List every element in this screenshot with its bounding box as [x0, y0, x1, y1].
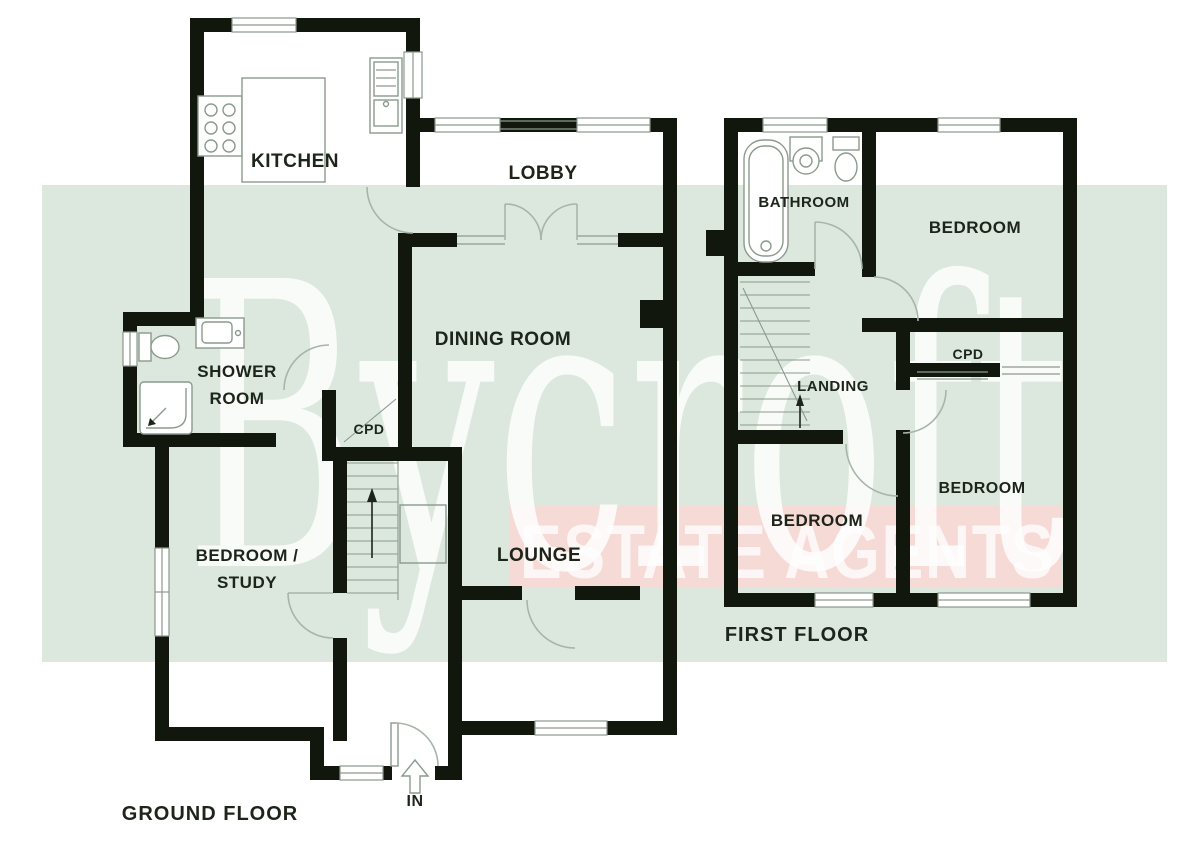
- landing-label: LANDING: [797, 378, 869, 395]
- toilet-fixture: [139, 333, 179, 361]
- window-porch: [340, 766, 383, 780]
- floorplan-image: ESTATE AGENTS Bycroft: [0, 0, 1200, 848]
- bedroom-study-label-line1: BEDROOM /: [196, 546, 299, 565]
- first-floor-title: FIRST FLOOR: [725, 624, 869, 646]
- bedroom-left-label: BEDROOM: [771, 511, 863, 530]
- window-ff-bottom-left: [815, 593, 873, 607]
- shower-tray-fixture: [140, 382, 192, 434]
- window-bedroom-left: [155, 548, 169, 636]
- floorplan-page: ESTATE AGENTS Bycroft: [0, 0, 1200, 848]
- shower-room-label-line1: SHOWER: [197, 362, 277, 381]
- window-lobby-right: [577, 118, 650, 132]
- window-kitchen-top: [232, 18, 296, 32]
- window-ff-top-right: [938, 118, 1000, 132]
- bedroom-right-label: BEDROOM: [938, 480, 1025, 497]
- wc-fixture: [833, 137, 859, 181]
- bathroom-label: BATHROOM: [758, 194, 849, 211]
- basin-fixture: [196, 318, 244, 348]
- in-label: IN: [407, 793, 424, 810]
- window-kitchen-right: [404, 52, 422, 98]
- dining-room-label: DINING ROOM: [435, 329, 571, 350]
- lounge-label: LOUNGE: [497, 545, 581, 566]
- kitchen-label: KITCHEN: [251, 151, 339, 172]
- window-lobby-left: [435, 118, 500, 132]
- pedestal-basin-fixture: [790, 137, 822, 174]
- window-shower-left: [123, 332, 137, 366]
- window-ff-bottom-right: [938, 593, 1030, 607]
- ground-floor-title: GROUND FLOOR: [122, 803, 298, 825]
- kitchen-sink-fixture: [370, 58, 402, 133]
- shower-room-label-line2: ROOM: [210, 389, 265, 408]
- hob-fixture: [198, 96, 242, 156]
- bedroom-top-label: BEDROOM: [929, 218, 1021, 237]
- window-lounge-bottom: [535, 721, 607, 735]
- entrance-arrow-icon: [402, 760, 428, 793]
- cpd-first-label: CPD: [952, 346, 983, 362]
- bedroom-study-label-line2: STUDY: [217, 573, 277, 592]
- window-ff-top-left: [763, 118, 827, 132]
- lobby-label: LOBBY: [509, 163, 578, 184]
- cpd-ground-label: CPD: [353, 421, 384, 437]
